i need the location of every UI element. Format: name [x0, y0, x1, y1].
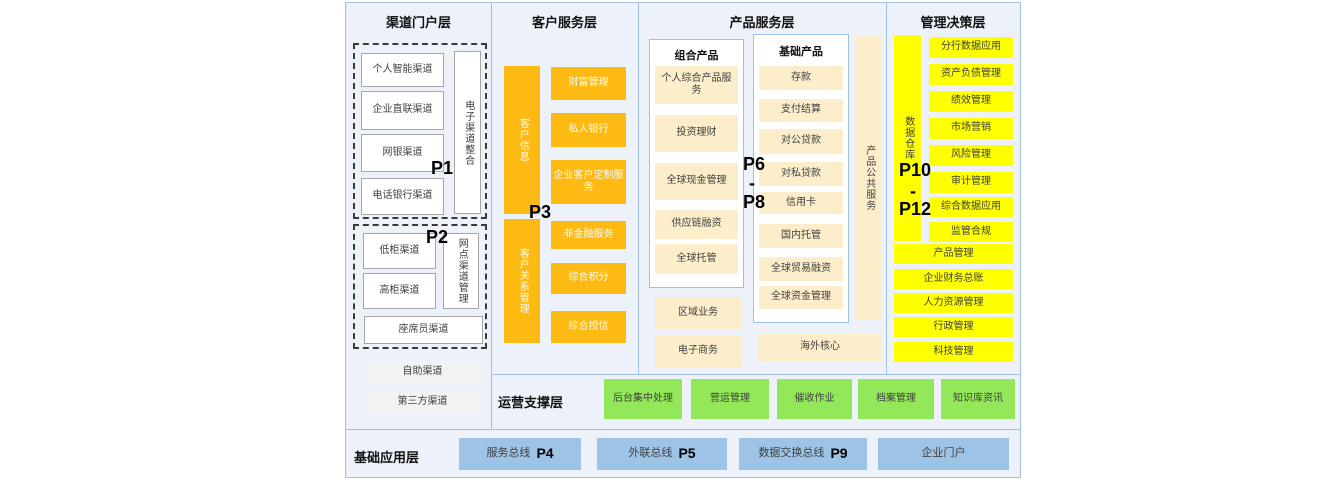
product-box-overseas-core: 海外核心	[758, 334, 882, 361]
p12-marker: P12	[899, 199, 931, 220]
p2-marker: P2	[426, 227, 448, 248]
channel-box-enterprise-direct: 企业直联渠道	[361, 91, 444, 130]
basic-product-panel-title: 基础产品	[753, 43, 849, 59]
architecture-diagram: 渠道门户层 客户服务层 产品服务层 管理决策层 个人智能渠道 企业直联渠道 网银…	[345, 2, 1021, 478]
p6-p8-dash: -	[749, 173, 755, 194]
bus-box-enterprise-portal: 企业门户	[878, 438, 1009, 470]
decision-box-asset-liability: 资产负债管理	[929, 64, 1013, 85]
divider-ops-top	[491, 374, 1020, 375]
p10-marker: P10	[899, 160, 931, 181]
decision-box-technology: 科技管理	[894, 342, 1013, 362]
bus-box-data-exchange: 数据交换总线P9	[739, 438, 867, 470]
divider-col3	[886, 3, 887, 374]
customer-relationship-bar: 客户关系管理	[504, 219, 540, 343]
p8-marker: P8	[743, 192, 765, 213]
divider-base-top	[346, 429, 1020, 430]
service-box-points: 综合积分	[551, 263, 626, 294]
channel-box-telephone-banking: 电话银行渠道	[361, 178, 444, 215]
combo-product-panel-title: 组合产品	[649, 47, 744, 63]
p1-marker: P1	[431, 158, 453, 179]
service-box-credit: 综合授信	[551, 311, 626, 343]
channel-portal-layer-title: 渠道门户层	[346, 12, 491, 31]
ops-box-archive: 档案管理	[858, 379, 934, 419]
decision-box-audit: 审计管理	[929, 172, 1013, 193]
p6-marker: P6	[743, 154, 765, 175]
bus-box-service: 服务总线P4	[459, 438, 581, 470]
bus-label: 企业门户	[922, 447, 966, 461]
bus-label: 外联总线	[628, 447, 672, 461]
service-box-private-banking: 私人银行	[551, 113, 626, 147]
customer-service-layer-title: 客户服务层	[491, 12, 638, 31]
product-box-personal-comprehensive: 个人综合产品服务	[655, 66, 738, 104]
channel-box-personal-smart: 个人智能渠道	[361, 53, 444, 87]
bus-label: 数据交换总线	[758, 447, 824, 461]
decision-box-comprehensive-data: 综合数据应用	[929, 197, 1013, 217]
product-box-investment: 投资理财	[655, 115, 738, 152]
product-box-regional: 区域业务	[655, 297, 741, 329]
product-box-global-fund: 全球资金管理	[759, 286, 843, 309]
product-box-corporate-loan: 对公贷款	[759, 129, 843, 154]
ops-box-operations: 营运管理	[691, 379, 769, 419]
branch-channel-management-bar: 网点渠道管理	[443, 233, 479, 309]
product-box-domestic-custody: 国内托管	[759, 224, 843, 248]
product-box-ecommerce: 电子商务	[655, 336, 741, 367]
decision-box-risk: 风险管理	[929, 145, 1013, 166]
management-decision-layer-title: 管理决策层	[886, 12, 1020, 31]
ops-box-collection: 催收作业	[777, 379, 852, 419]
decision-box-product-management: 产品管理	[894, 244, 1013, 264]
divider-col1	[491, 3, 492, 429]
product-box-payment: 支付结算	[759, 99, 843, 122]
decision-box-financial-ledger: 企业财务总账	[894, 269, 1013, 289]
decision-box-hr: 人力资源管理	[894, 293, 1013, 313]
p5-marker: P5	[678, 445, 695, 463]
product-box-personal-loan: 对私贷款	[759, 162, 843, 186]
product-box-supply-chain: 供应链融资	[655, 210, 738, 239]
basic-application-layer-title: 基础应用层	[354, 447, 419, 466]
p3-marker: P3	[529, 202, 551, 223]
divider-col2	[638, 3, 639, 374]
operation-support-layer-title: 运营支撑层	[498, 392, 563, 411]
channel-box-high-counter: 高柜渠道	[363, 273, 436, 309]
product-public-service-bar: 产品公共服务	[855, 36, 882, 319]
electronic-channel-integration-bar: 电子渠道整合	[454, 51, 481, 214]
service-box-non-financial: 非金融服务	[551, 221, 626, 249]
p9-marker: P9	[830, 445, 847, 463]
decision-box-performance: 绩效管理	[929, 91, 1013, 112]
channel-box-agent: 座席员渠道	[364, 316, 483, 344]
product-box-deposit: 存款	[759, 66, 843, 90]
product-box-global-custody: 全球托管	[655, 244, 738, 274]
channel-box-third-party: 第三方渠道	[366, 391, 479, 414]
product-box-global-cash: 全球现金管理	[655, 163, 738, 200]
decision-box-branch-data: 分行数据应用	[929, 37, 1013, 58]
ops-box-knowledge: 知识库资讯	[941, 379, 1015, 419]
decision-box-marketing: 市场营销	[929, 118, 1013, 139]
ops-box-backoffice: 后台集中处理	[604, 379, 682, 419]
customer-info-bar: 客户信息	[504, 66, 540, 214]
product-box-credit-card: 信用卡	[759, 192, 843, 214]
decision-box-compliance: 监管合规	[929, 222, 1013, 242]
service-box-wealth: 财富管理	[551, 67, 626, 100]
product-box-global-trade-finance: 全球贸易融资	[759, 257, 843, 281]
bus-box-external: 外联总线P5	[597, 438, 727, 470]
decision-box-administration: 行政管理	[894, 317, 1013, 337]
product-service-layer-title: 产品服务层	[638, 12, 886, 31]
service-box-enterprise-custom: 企业客户定制服务	[551, 160, 626, 204]
bus-label: 服务总线	[486, 447, 530, 461]
p4-marker: P4	[536, 445, 553, 463]
channel-box-self-service: 自助渠道	[366, 361, 479, 384]
